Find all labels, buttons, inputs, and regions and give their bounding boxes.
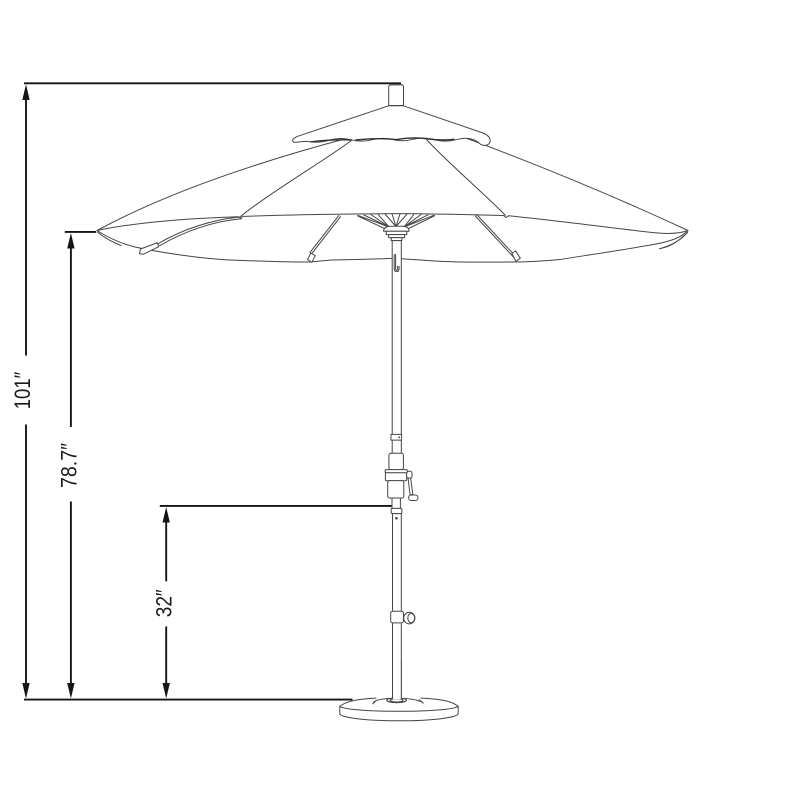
svg-text:101″: 101″ [10,372,35,410]
svg-text:32″: 32″ [151,589,176,617]
svg-text:78.7″: 78.7″ [56,443,81,488]
